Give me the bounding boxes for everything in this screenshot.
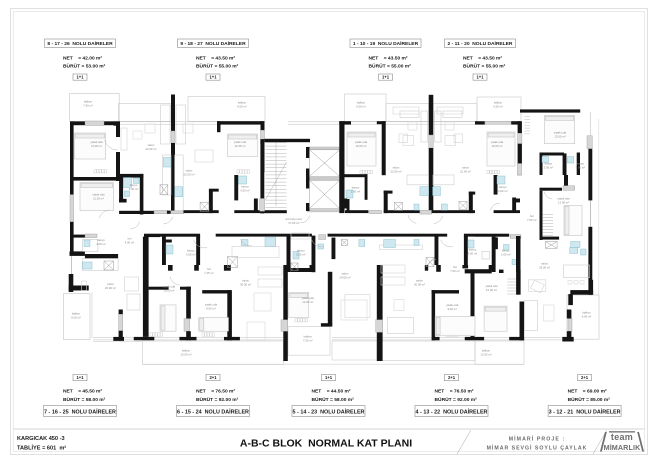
svg-text:1+1: 1+1 <box>382 75 390 80</box>
svg-text:7.50 m²: 7.50 m² <box>83 104 93 108</box>
svg-text:13.00 m²: 13.00 m² <box>180 353 191 357</box>
svg-text:BÜRÜT = 53.00 m²: BÜRÜT = 53.00 m² <box>63 63 106 70</box>
svg-text:9.00 m²: 9.00 m² <box>447 307 457 311</box>
svg-text:6.00 m²: 6.00 m² <box>237 105 247 109</box>
svg-text:7.25 m²: 7.25 m² <box>204 271 214 275</box>
svg-text:13.00 m²: 13.00 m² <box>163 289 174 293</box>
svg-text:30.00 m²: 30.00 m² <box>240 283 251 287</box>
svg-text:3.00 m²: 3.00 m² <box>296 253 306 257</box>
svg-text:NET = 42.00 m²: NET = 42.00 m² <box>63 55 102 61</box>
svg-text:1+1: 1+1 <box>476 75 484 80</box>
svg-text:NET = 76.50 m²: NET = 76.50 m² <box>196 389 235 395</box>
svg-text:9.00 m²: 9.00 m² <box>206 307 216 311</box>
svg-text:BÜRÜT = 85.00 m²: BÜRÜT = 85.00 m² <box>568 396 611 403</box>
svg-text:MİMARİ PROJE :: MİMARİ PROJE : <box>509 436 566 443</box>
svg-text:6.00 m²: 6.00 m² <box>71 316 81 320</box>
svg-text:22.00 m²: 22.00 m² <box>460 170 471 174</box>
svg-text:BÜRÜT = 58.00 m²: BÜRÜT = 58.00 m² <box>63 396 106 403</box>
svg-text:3.00 m²: 3.00 m² <box>468 252 478 256</box>
svg-text:10.36 m²: 10.36 m² <box>234 144 245 148</box>
svg-text:6.00 m²: 6.00 m² <box>356 105 366 109</box>
svg-text:2.60 m²: 2.60 m² <box>501 253 511 257</box>
svg-text:2+1: 2+1 <box>581 375 589 380</box>
svg-text:1+1: 1+1 <box>76 375 84 380</box>
svg-text:20.00 m²: 20.00 m² <box>105 286 116 290</box>
svg-text:22.00 m²: 22.00 m² <box>145 147 156 151</box>
svg-text:3 - 12 - 21 NOLU DAİRELER: 3 - 12 - 21 NOLU DAİRELER <box>549 409 621 416</box>
svg-text:1+1: 1+1 <box>209 75 217 80</box>
svg-text:4.00 m²: 4.00 m² <box>125 241 135 245</box>
svg-text:KARGICAK 450 -3: KARGICAK 450 -3 <box>17 436 65 442</box>
svg-text:10.00 m²: 10.00 m² <box>355 144 366 148</box>
svg-text:BÜRÜT = 92.00 m²: BÜRÜT = 92.00 m² <box>435 396 478 403</box>
svg-text:23.50 m²: 23.50 m² <box>183 173 194 177</box>
svg-text:1 - 10 - 19 NOLU DAİRELER: 1 - 10 - 19 NOLU DAİRELER <box>353 40 419 47</box>
svg-text:3.00 m²: 3.00 m² <box>544 166 554 170</box>
svg-text:NET = 45.50 m²: NET = 45.50 m² <box>63 389 102 395</box>
svg-text:2 - 11 - 20 NOLU DAİRELER: 2 - 11 - 20 NOLU DAİRELER <box>448 40 513 47</box>
svg-text:11.00 m²: 11.00 m² <box>93 197 104 201</box>
svg-text:24.00 m²: 24.00 m² <box>339 276 350 280</box>
svg-text:TABLİYE = 601 m²: TABLİYE = 601 m² <box>17 445 66 452</box>
svg-text:2+1: 2+1 <box>209 375 217 380</box>
svg-text:7.00 m²: 7.00 m² <box>303 339 313 343</box>
svg-text:4.00 m²: 4.00 m² <box>96 242 106 246</box>
svg-text:3.00 m²: 3.00 m² <box>186 253 196 257</box>
svg-text:MİMARLIK: MİMARLIK <box>604 443 641 452</box>
svg-text:3.00 m²: 3.00 m² <box>576 166 586 170</box>
svg-text:6.00 m²: 6.00 m² <box>582 315 592 319</box>
svg-text:7.50 m²: 7.50 m² <box>527 218 537 222</box>
svg-text:10.00 m²: 10.00 m² <box>491 144 502 148</box>
svg-text:8 - 17 - 26 NOLU DAİRELER: 8 - 17 - 26 NOLU DAİRELER <box>47 40 113 47</box>
svg-text:2.60 m²: 2.60 m² <box>351 190 361 194</box>
svg-text:4 - 13 - 22 NOLU DAİRELER: 4 - 13 - 22 NOLU DAİRELER <box>416 409 488 416</box>
svg-text:BÜRÜT = 55.00 m²: BÜRÜT = 55.00 m² <box>369 63 412 70</box>
svg-text:1+1: 1+1 <box>76 75 84 80</box>
svg-text:NET = 44.50 m²: NET = 44.50 m² <box>312 389 351 395</box>
svg-text:12.00 m²: 12.00 m² <box>302 300 313 304</box>
svg-text:2+1: 2+1 <box>448 375 456 380</box>
svg-text:17.00 m²: 17.00 m² <box>288 221 299 225</box>
svg-text:NET = 43.50 m²: NET = 43.50 m² <box>196 55 235 61</box>
svg-text:33.00 m²: 33.00 m² <box>539 266 550 270</box>
svg-text:12.00 m²: 12.00 m² <box>486 288 497 292</box>
svg-text:13.00 m²: 13.00 m² <box>558 201 569 205</box>
svg-text:BÜRÜT = 58.00 m²: BÜRÜT = 58.00 m² <box>312 396 355 403</box>
svg-text:13.00 m²: 13.00 m² <box>480 353 491 357</box>
svg-text:11.00 m²: 11.00 m² <box>91 144 102 148</box>
svg-text:NET = 76.50 m²: NET = 76.50 m² <box>435 389 474 395</box>
svg-text:6 - 15 - 24 NOLU DAİRELER: 6 - 15 - 24 NOLU DAİRELER <box>177 409 249 416</box>
svg-text:NET = 43.50 m²: NET = 43.50 m² <box>369 55 408 61</box>
svg-text:9 - 18 - 27 NOLU DAİRELER: 9 - 18 - 27 NOLU DAİRELER <box>180 40 246 47</box>
svg-text:team: team <box>611 432 633 442</box>
svg-text:13.00 m²: 13.00 m² <box>554 135 565 139</box>
svg-text:NET = 43.50 m²: NET = 43.50 m² <box>463 55 502 61</box>
svg-text:A-B-C BLOK NORMAL KAT PLANI: A-B-C BLOK NORMAL KAT PLANI <box>240 438 412 450</box>
svg-text:1+1: 1+1 <box>325 375 333 380</box>
svg-text:5.50 m²: 5.50 m² <box>493 105 503 109</box>
svg-text:NET = 69.00 m²: NET = 69.00 m² <box>568 389 607 395</box>
svg-text:MİMAR SEVGİ SOYLU ÇAYLAK: MİMAR SEVGİ SOYLU ÇAYLAK <box>487 445 588 452</box>
svg-text:7 - 16 - 25 NOLU DAİRELER: 7 - 16 - 25 NOLU DAİRELER <box>44 409 116 416</box>
svg-text:22.00 m²: 22.00 m² <box>390 170 401 174</box>
svg-text:BÜRÜT = 55.00 m²: BÜRÜT = 55.00 m² <box>463 63 506 70</box>
svg-text:5 - 14 - 23 NOLU DAİRELER: 5 - 14 - 23 NOLU DAİRELER <box>293 409 365 416</box>
svg-text:7.00 m²: 7.00 m² <box>450 269 460 273</box>
svg-text:BÜRÜT = 55.00 m²: BÜRÜT = 55.00 m² <box>196 63 239 70</box>
svg-text:BÜRÜT = 92.00 m²: BÜRÜT = 92.00 m² <box>196 396 239 403</box>
svg-text:3.00 m²: 3.00 m² <box>498 189 508 193</box>
svg-text:3.00 m²: 3.00 m² <box>129 187 139 191</box>
svg-text:3.00 m²: 3.00 m² <box>240 189 250 193</box>
svg-text:30.00 m²: 30.00 m² <box>414 283 425 287</box>
